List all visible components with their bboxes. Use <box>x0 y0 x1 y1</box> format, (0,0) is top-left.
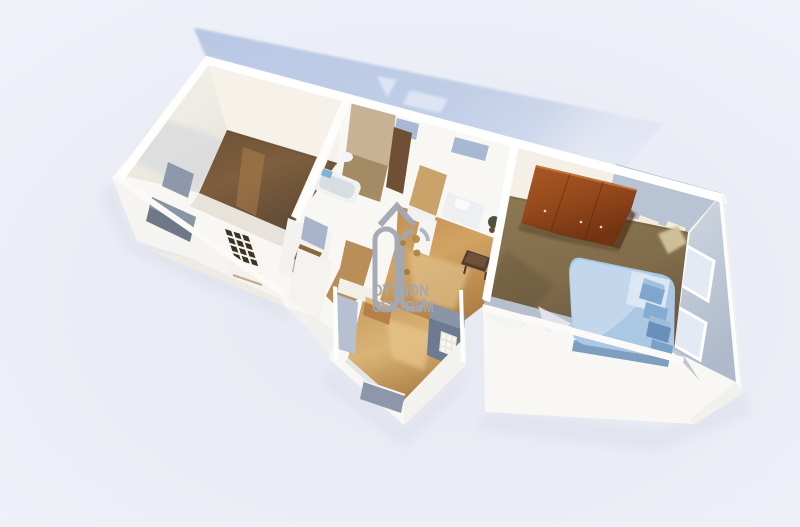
svg-text:CENTRUM: CENTRUM <box>372 299 434 316</box>
svg-text:OTTHON: OTTHON <box>372 282 429 300</box>
